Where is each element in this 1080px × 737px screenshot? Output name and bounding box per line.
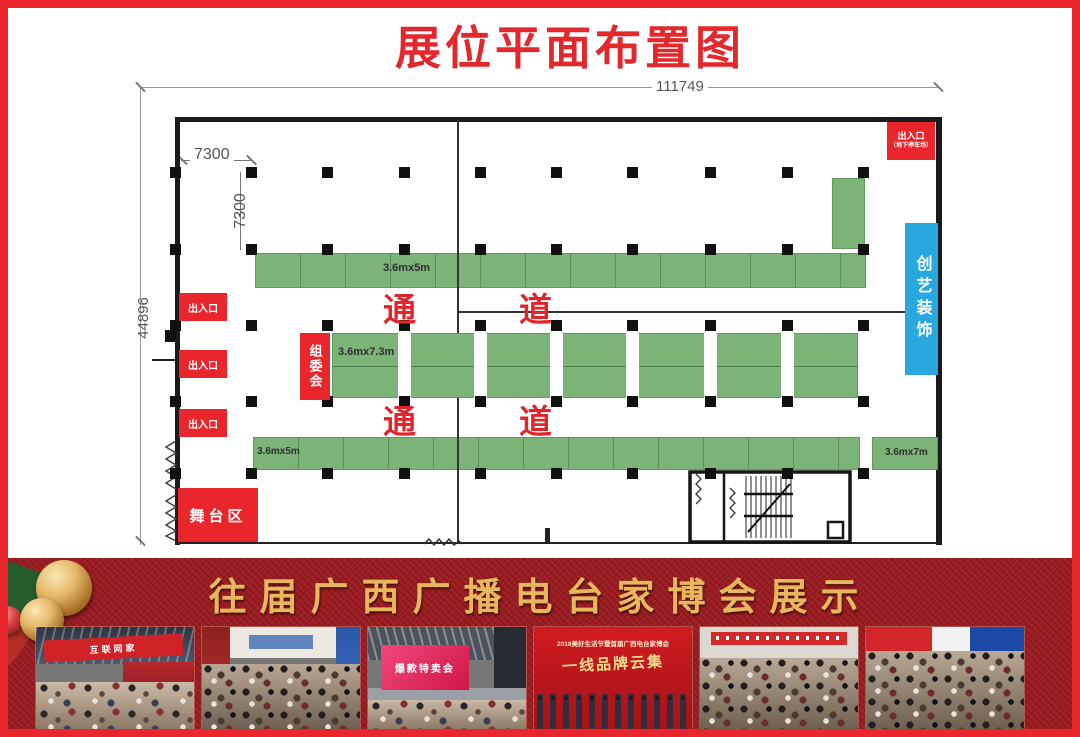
stage-backdrop-title: 2018美好生活节暨首届广西电台家博会 [534, 633, 692, 651]
wall-hatch-symbol [164, 441, 178, 489]
column-marker [627, 396, 638, 407]
crowd [700, 658, 858, 729]
column-marker [399, 167, 410, 178]
column-marker [322, 320, 333, 331]
event-photo-3: 爆款特卖会 [368, 627, 526, 729]
column-marker [475, 244, 486, 255]
column-marker [170, 396, 181, 407]
booth-size-label: 3.6mx5m [383, 262, 430, 274]
column-marker [627, 320, 638, 331]
column-marker [475, 320, 486, 331]
aisle-label: 道 [519, 292, 552, 328]
dimension-total-height: 44896 [136, 282, 152, 354]
column-marker [246, 468, 257, 479]
booth-row-top [255, 253, 866, 288]
frame-border [1072, 0, 1080, 737]
banner-text-marks [716, 636, 842, 640]
event-photo-4: 2018美好生活节暨首届广西电台家博会 一线品牌云集 [534, 627, 692, 729]
column-marker [399, 244, 410, 255]
column-marker [170, 167, 181, 178]
hanging-banner-text: 互联网家 [89, 640, 138, 655]
column-marker [782, 396, 793, 407]
aisle-label: 道 [519, 404, 552, 440]
page-title: 展位平面布置图 [240, 22, 900, 74]
column-marker [170, 468, 181, 479]
signage-red [866, 627, 932, 654]
event-photo-5 [700, 627, 858, 729]
column-marker [170, 320, 181, 331]
column-marker [705, 320, 716, 331]
column-marker [551, 396, 562, 407]
column-marker [858, 468, 869, 479]
dimension-bay-height: 7300 [233, 183, 249, 239]
column-marker [627, 244, 638, 255]
stage-area-box: 舞台区 [178, 488, 258, 542]
column-marker [322, 167, 333, 178]
column-marker [475, 468, 486, 479]
decorator-box: 创艺装饰 [905, 223, 938, 375]
aisle-label: 通 [383, 404, 416, 440]
column-marker [246, 244, 257, 255]
column-marker [858, 167, 869, 178]
bottom-banner: 往届广西广播电台家博会展示 互联网家 [0, 558, 1080, 737]
event-photo-6 [866, 627, 1024, 729]
event-photo-1: 互联网家 [36, 627, 194, 729]
crowd [36, 682, 194, 729]
column-marker [782, 468, 793, 479]
column-marker [475, 396, 486, 407]
booth-vertical [832, 178, 865, 249]
column-gap [474, 332, 487, 399]
wall-top [175, 117, 942, 122]
divider-wall-lower [457, 398, 459, 542]
exit-box-1: 出入口 [179, 293, 227, 321]
column-marker [246, 396, 257, 407]
frame-border [0, 0, 8, 737]
led-screen: 爆款特卖会 [381, 645, 469, 690]
column-marker [627, 468, 638, 479]
dimension-total-width: 111749 [652, 79, 708, 95]
aisle-label: 通 [383, 292, 416, 328]
event-photo-2 [202, 627, 360, 729]
audience [368, 700, 526, 729]
column-gap [550, 332, 563, 399]
signage-blue [970, 627, 1024, 654]
crowd [202, 664, 360, 729]
column-marker [782, 320, 793, 331]
crowd [866, 651, 1024, 729]
booth-size-label: 3.6mx7m [885, 447, 928, 458]
column-marker [782, 244, 793, 255]
column-marker [705, 468, 716, 479]
calligraphy-slogan: 一线品牌云集 [534, 649, 692, 678]
column-marker [246, 167, 257, 178]
column-marker [551, 244, 562, 255]
column-marker [705, 396, 716, 407]
column-marker [782, 167, 793, 178]
entrance-parking-line1: 出入口 [897, 131, 924, 141]
column-gap [398, 332, 411, 399]
people-lineup [534, 694, 692, 729]
column-marker [551, 167, 562, 178]
column-marker [858, 396, 869, 407]
exit-box-3: 出入口 [179, 409, 227, 437]
exit-box-2: 出入口 [179, 350, 227, 378]
stairwell [688, 470, 852, 544]
column-marker [246, 320, 257, 331]
photo-strip: 互联网家 爆款特卖会 [36, 627, 1024, 729]
aisle-sign [249, 635, 312, 649]
divider-wall-upper [457, 120, 459, 333]
stage-backdrop-title-text: 2018美好生活节暨首届广西电台家博会 [557, 641, 669, 648]
banner-title: 往届广西广播电台家博会展示 [0, 566, 1080, 621]
wall-hatch-symbol [164, 495, 178, 541]
column-marker [858, 244, 869, 255]
column-marker [551, 468, 562, 479]
column-marker [705, 167, 716, 178]
wall-pier [165, 330, 176, 342]
column-gap [626, 332, 639, 399]
calligraphy-slogan-text: 一线品牌云集 [562, 653, 665, 675]
door-mark [152, 359, 176, 361]
frame-border [0, 0, 1080, 8]
column-gap [781, 332, 794, 399]
frame-border [0, 729, 1080, 737]
poster: 展位平面布置图 111749 44896 7300 7300 3.6mx5m 3… [0, 0, 1080, 737]
booth-row-middle [332, 333, 858, 398]
dimension-bay-width: 7300 [190, 147, 234, 163]
column-marker [322, 468, 333, 479]
column-gap [704, 332, 717, 399]
column-marker [705, 244, 716, 255]
entrance-parking-line2: （地下停车场） [890, 141, 932, 151]
column-marker [322, 244, 333, 255]
column-marker [170, 244, 181, 255]
committee-box: 组委会 [300, 333, 330, 400]
dimension-line-total-width [140, 87, 940, 88]
column-marker [627, 167, 638, 178]
booth-row-bottom [253, 437, 860, 470]
column-marker [858, 320, 869, 331]
signage-white [932, 627, 970, 654]
booth-size-label: 3.6mx7.3m [338, 346, 394, 358]
column-marker [475, 167, 486, 178]
entrance-parking-box: 出入口 （地下停车场） [887, 122, 935, 160]
column-marker [399, 468, 410, 479]
door-mark [545, 528, 550, 543]
column-marker [551, 320, 562, 331]
booth-size-label: 3.6mx5m [257, 446, 300, 457]
led-screen-text: 爆款特卖会 [395, 660, 455, 675]
